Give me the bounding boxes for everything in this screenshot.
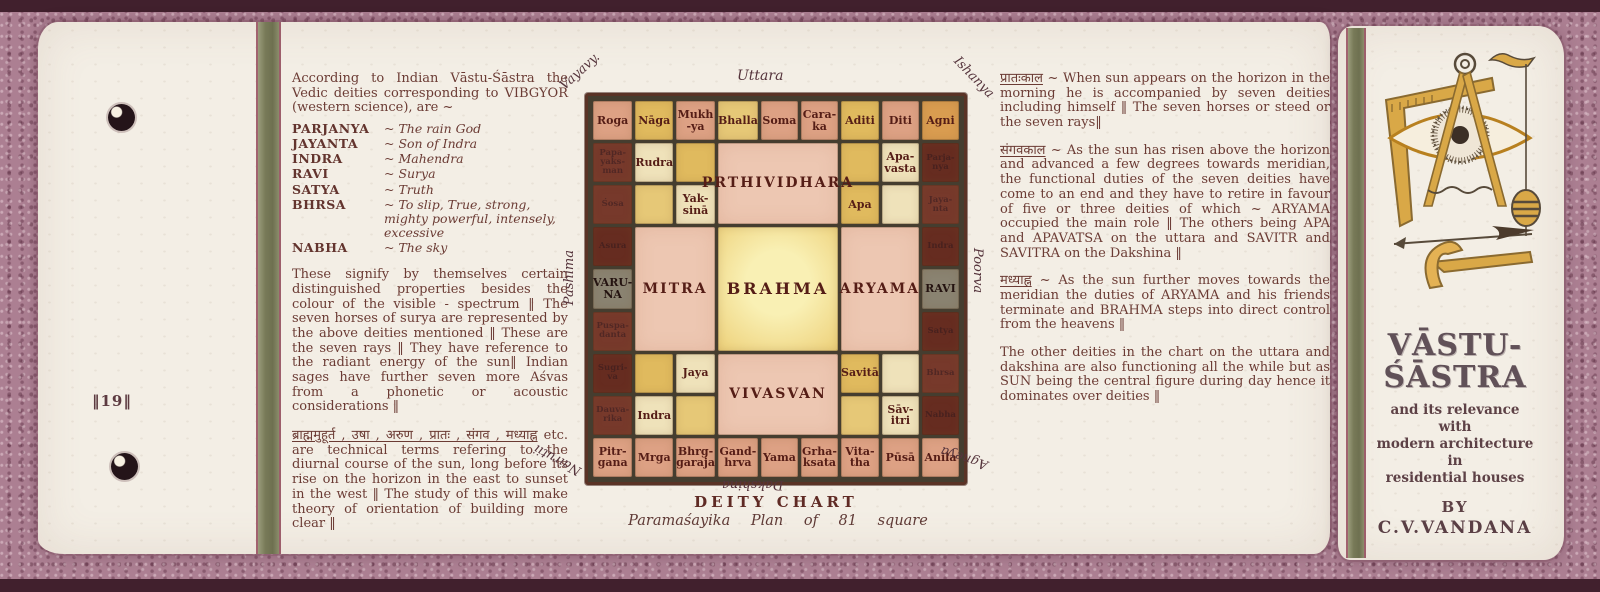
deity-name: JAYANTA bbox=[292, 137, 384, 151]
deity-cell: RAVI bbox=[922, 269, 959, 308]
cover-subtitle: and its relevancewithmodern architecture… bbox=[1362, 402, 1548, 486]
page-number: ‖19‖ bbox=[92, 392, 132, 410]
right-paragraph-1-body: ~ When sun appears on the horizon in the… bbox=[1000, 71, 1330, 130]
drafting-instruments-illustration bbox=[1372, 38, 1550, 290]
deity-definition-row: SATYA~ Truth bbox=[292, 183, 568, 197]
left-paragraph-3-body: etc. are technical terms refering to the… bbox=[292, 428, 568, 531]
deity-cell: Savitā bbox=[841, 354, 879, 393]
deity-cell: Aditi bbox=[841, 101, 879, 140]
direction-pashima: Pashima bbox=[562, 250, 577, 305]
compass-pivot-inner bbox=[1461, 60, 1469, 68]
cover-title: VĀSTU- ŚĀSTRA bbox=[1362, 330, 1548, 393]
chart-title: DEITY CHART bbox=[585, 493, 967, 511]
deity-meaning: ~ Truth bbox=[384, 183, 434, 197]
deity-meaning: ~ Surya bbox=[384, 167, 436, 181]
deity-definition-row: NABHA~ The sky bbox=[292, 241, 568, 255]
right-paragraph-3-body: ~ As the sun further moves towards the m… bbox=[1000, 273, 1330, 332]
deity-name: INDRA bbox=[292, 152, 384, 166]
deity-meaning: ~ Son of Indra bbox=[384, 137, 477, 151]
deity-cell: Jaya- nta bbox=[922, 185, 959, 224]
deity-cell: Diti bbox=[882, 101, 919, 140]
deity-cell: Rudra bbox=[635, 143, 673, 182]
deity-name: SATYA bbox=[292, 183, 384, 197]
deity-cell: Bhrsa bbox=[922, 354, 959, 393]
arrow-fletching bbox=[1492, 226, 1534, 240]
left-binding-strip bbox=[256, 22, 281, 554]
deity-cell: Grha- ksata bbox=[801, 438, 838, 477]
photo-top-edge bbox=[0, 0, 1600, 12]
deity-name: NABHA bbox=[292, 241, 384, 255]
deity-cell bbox=[635, 354, 673, 393]
deity-cell bbox=[841, 396, 879, 435]
deity-cell: Sugri- va bbox=[593, 354, 632, 393]
cover-title-line1: VĀSTU- bbox=[1362, 330, 1548, 362]
photo-bottom-edge bbox=[0, 579, 1600, 592]
pupil bbox=[1451, 126, 1469, 144]
deity-cell: Puspa- danta bbox=[593, 312, 632, 351]
deity-cell: Śosa bbox=[593, 185, 632, 224]
direction-poorva: Poorva bbox=[970, 248, 985, 293]
deity-cell: Satya bbox=[922, 312, 959, 351]
cover-by: BY bbox=[1362, 498, 1548, 516]
right-paragraph-1: प्रातःकाल ~ When sun appears on the hori… bbox=[1000, 72, 1330, 131]
right-paragraph-2: संगवकाल ~ As the sun has risen above the… bbox=[1000, 144, 1330, 262]
bench-plane bbox=[1432, 252, 1532, 272]
deity-cell bbox=[882, 185, 919, 224]
deity-cell: Soma bbox=[761, 101, 798, 140]
deity-cell: Pitr- gana bbox=[593, 438, 632, 477]
deity-chart-grid: RogaNāgaMukh -yaBhallaSomaCara- kaAditiD… bbox=[585, 93, 967, 485]
deity-cell: Indra bbox=[922, 227, 959, 266]
deity-block-aryama: ARYAMA bbox=[841, 227, 919, 350]
deity-definition-row: INDRA~ Mahendra bbox=[292, 152, 568, 166]
deity-cell: Asura bbox=[593, 227, 632, 266]
deity-meaning: ~ Mahendra bbox=[384, 152, 464, 166]
deity-definition-row: BHRSA~ To slip, True, strong, mighty pow… bbox=[292, 198, 568, 240]
cover-subtitle-line: in bbox=[1362, 453, 1548, 470]
deity-block-vivasvan: VIVASVAN bbox=[718, 354, 838, 435]
deity-cell: Agni bbox=[922, 101, 959, 140]
deity-cell: Cara- ka bbox=[801, 101, 838, 140]
binding-hole-bottom bbox=[111, 453, 138, 480]
deity-name: PARJANYA bbox=[292, 122, 384, 136]
deity-cell: VARU- NA bbox=[593, 269, 632, 308]
deity-cell: Mukh -ya bbox=[676, 101, 715, 140]
cover-subtitle-line: modern architecture bbox=[1362, 436, 1548, 453]
left-paragraph-3: ब्राह्ममुहूर्त , उषा , अरुण , प्रातः , स… bbox=[292, 429, 568, 532]
intro-paragraph: According to Indian Vāstu-Śāstra the Ved… bbox=[292, 72, 568, 116]
deity-cell: Nāga bbox=[635, 101, 673, 140]
tassel bbox=[1490, 54, 1534, 67]
deity-cell: Parja- nya bbox=[922, 143, 959, 182]
deity-block-brahma: BRAHMA bbox=[718, 227, 838, 350]
deity-cell: Yama bbox=[761, 438, 798, 477]
right-paragraph-4: The other deities in the chart on the ut… bbox=[1000, 346, 1330, 405]
deity-cell: Roga bbox=[593, 101, 632, 140]
cover-author: C.V.VANDANA bbox=[1352, 518, 1558, 538]
right-paragraph-3: मध्याह्न ~ As the sun further moves towa… bbox=[1000, 274, 1330, 333]
scanned-vastu-sastra-page: { "document": { "page_number": "\u201619… bbox=[0, 0, 1600, 592]
deity-cell: Dauva- rika bbox=[593, 396, 632, 435]
deity-meaning: ~ The rain God bbox=[384, 122, 481, 136]
deity-block-prthividhara: PRTHIVIDHARA bbox=[718, 143, 838, 224]
deity-cell: Vita- tha bbox=[841, 438, 879, 477]
left-text-column: According to Indian Vāstu-Śāstra the Ved… bbox=[292, 72, 568, 545]
deity-meaning: ~ The sky bbox=[384, 241, 447, 255]
deity-cell: Nabha bbox=[922, 396, 959, 435]
deity-definition-row: RAVI~ Surya bbox=[292, 167, 568, 181]
sanskrit-terms: ब्राह्ममुहूर्त , उषा , अरुण , प्रातः , स… bbox=[292, 428, 538, 443]
deity-cell: Apa- vasta bbox=[882, 143, 919, 182]
deity-cell bbox=[882, 354, 919, 393]
deity-cell: Apa bbox=[841, 185, 879, 224]
deity-cell: Mrga bbox=[635, 438, 673, 477]
compass-pivot bbox=[1455, 54, 1475, 74]
deity-cell: Papa- yaks- man bbox=[593, 143, 632, 182]
left-paragraph-2: These signify by themselves certain dist… bbox=[292, 268, 568, 415]
pratahkala-term: प्रातःकाल bbox=[1000, 71, 1043, 86]
cover-title-line2: ŚĀSTRA bbox=[1362, 362, 1548, 394]
deity-cell: Yak- sinā bbox=[676, 185, 715, 224]
deity-cell: Indra bbox=[635, 396, 673, 435]
cover-subtitle-line: with bbox=[1362, 419, 1548, 436]
deity-name: BHRSA bbox=[292, 198, 384, 240]
deity-cell bbox=[635, 185, 673, 224]
deity-cell: Jaya bbox=[676, 354, 715, 393]
chart-subtitle: Paramaśayika Plan of 81 square bbox=[568, 513, 988, 529]
direction-uttara: Uttara bbox=[737, 68, 783, 84]
sangavakala-term: संगवकाल bbox=[1000, 143, 1046, 158]
right-paragraph-2-body: ~ As the sun has risen above the horizon… bbox=[1000, 143, 1330, 261]
deity-definition-list: PARJANYA~ The rain GodJAYANTA~ Son of In… bbox=[292, 122, 568, 255]
madhyahna-term: मध्याह्न bbox=[1000, 273, 1032, 288]
deity-cell: Pūsā bbox=[882, 438, 919, 477]
binding-hole-top bbox=[108, 104, 135, 131]
right-text-column: प्रातःकाल ~ When sun appears on the hori… bbox=[1000, 72, 1330, 418]
deity-definition-row: JAYANTA~ Son of Indra bbox=[292, 137, 568, 151]
deity-cell: Gand- hrva bbox=[718, 438, 758, 477]
deity-definition-row: PARJANYA~ The rain God bbox=[292, 122, 568, 136]
arrow-head bbox=[1394, 237, 1406, 249]
deity-cell: Bhalla bbox=[718, 101, 758, 140]
cover-subtitle-line: and its relevance bbox=[1362, 402, 1548, 419]
deity-cell: Sāv- itri bbox=[882, 396, 919, 435]
cover-subtitle-line: residential houses bbox=[1362, 470, 1548, 487]
direction-dakshina: Dakshina bbox=[722, 477, 783, 492]
deity-cell: Bhrg- garaja bbox=[676, 438, 715, 477]
deity-cell bbox=[676, 396, 715, 435]
deity-block-mitra: MITRA bbox=[635, 227, 715, 350]
deity-meaning: ~ To slip, True, strong, mighty powerful… bbox=[384, 198, 568, 240]
deity-name: RAVI bbox=[292, 167, 384, 181]
